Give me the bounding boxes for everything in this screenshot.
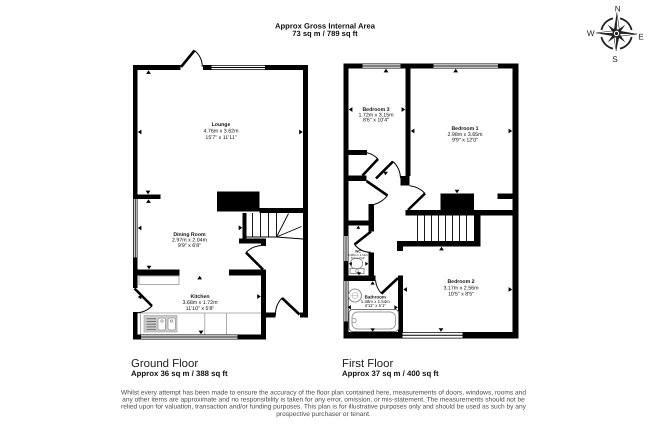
svg-text:11'10" x 5'8": 11'10" x 5'8" [186,306,215,312]
svg-text:Bedroom 2: Bedroom 2 [447,279,474,285]
svg-text:15'7" x 11'11": 15'7" x 11'11" [205,135,236,141]
svg-text:W: W [587,29,595,38]
svg-text:73 sq m / 789 sq ft: 73 sq m / 789 sq ft [292,29,358,38]
svg-text:Whilst every attempt has been: Whilst every attempt has been made to en… [121,389,526,396]
svg-text:4.76m x 3.62m: 4.76m x 3.62m [203,129,239,135]
svg-text:3.17m x 2.56m: 3.17m x 2.56m [443,285,479,291]
svg-text:prospective purchaser or tenan: prospective purchaser or tenant. [276,411,371,418]
svg-text:Kitchen: Kitchen [190,294,209,300]
svg-text:4'11" x 5'1": 4'11" x 5'1" [365,303,387,308]
svg-text:3'7" x 4'11": 3'7" x 4'11" [351,256,366,260]
svg-text:E: E [638,32,644,41]
svg-text:9'9" x 12'0": 9'9" x 12'0" [452,138,478,144]
svg-text:Approx 37 sq m / 400 sq ft: Approx 37 sq m / 400 sq ft [342,369,439,378]
svg-text:N: N [615,5,621,14]
svg-text:Approx 36 sq m / 388 sq ft: Approx 36 sq m / 388 sq ft [131,369,228,378]
svg-text:10'5" x 8'5": 10'5" x 8'5" [448,292,474,298]
svg-text:3.68m x 1.72m: 3.68m x 1.72m [182,300,218,306]
svg-text:8'6" x 10'4": 8'6" x 10'4" [363,118,389,124]
svg-text:any other items are approximat: any other items are approximate and no r… [122,397,525,404]
svg-text:Lounge: Lounge [212,122,231,128]
svg-text:S: S [612,55,618,64]
svg-text:9'9" x 6'8": 9'9" x 6'8" [178,243,201,249]
svg-text:relied upon for valuation, tra: relied upon for valuation, transaction a… [121,404,527,411]
